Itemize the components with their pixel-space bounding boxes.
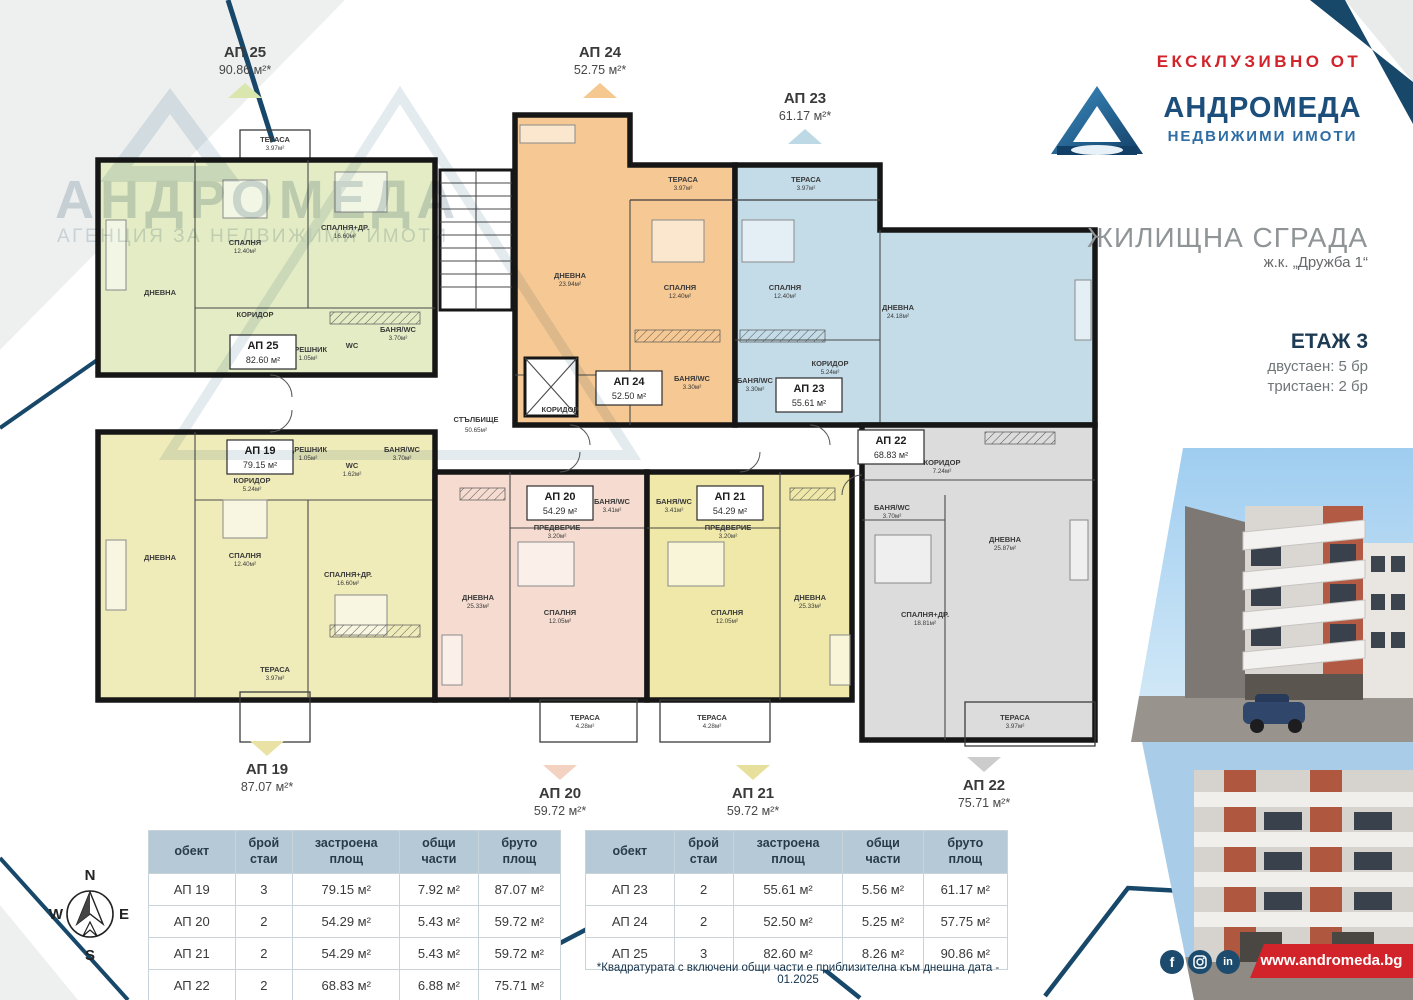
svg-text:24.18м²: 24.18м²: [887, 313, 909, 320]
svg-text:АП 20: АП 20: [545, 491, 576, 503]
table-header-row: обект брой стаи застроена площ общи част…: [586, 831, 1008, 874]
table-row: АП 242 52.50 м²5.25 м² 57.75 м²: [586, 906, 1008, 938]
brand-subtitle: НЕДВИЖИМИ ИМОТИ: [1150, 128, 1375, 145]
svg-text:3.70м²: 3.70м²: [389, 335, 408, 342]
svg-text:82.60 м²: 82.60 м²: [246, 355, 280, 365]
svg-text:3.30м²: 3.30м²: [746, 386, 765, 393]
callout-id: АП 25: [175, 44, 315, 61]
svg-text:23.94м²: 23.94м²: [559, 281, 581, 288]
svg-text:СПАЛНЯ+ДР.: СПАЛНЯ+ДР.: [324, 570, 372, 579]
svg-text:3.20м²: 3.20м²: [719, 533, 738, 540]
callout-ap24: АП 24 52.75 м²*: [530, 44, 670, 103]
door-arc: [740, 452, 760, 472]
svg-text:АП 24: АП 24: [614, 376, 646, 388]
callout-ap22: АП 22 75.71 м²*: [914, 752, 1054, 811]
svg-text:25.87м²: 25.87м²: [994, 545, 1016, 552]
col-header: застроена площ: [293, 831, 400, 874]
svg-text:55.61 м²: 55.61 м²: [792, 398, 826, 408]
callout-ap25: АП 25 90.86 м²*: [175, 44, 315, 103]
svg-text:12.40м²: 12.40м²: [234, 248, 256, 255]
door-arc: [560, 452, 580, 472]
svg-text:АП 23: АП 23: [794, 383, 825, 395]
svg-text:СПАЛНЯ: СПАЛНЯ: [664, 283, 696, 292]
svg-text:3.70м²: 3.70м²: [393, 455, 412, 462]
col-header: брой стаи: [235, 831, 293, 874]
svg-text:12.40м²: 12.40м²: [669, 293, 691, 300]
svg-text:52.50 м²: 52.50 м²: [612, 391, 646, 401]
callout-ap23: АП 23 61.17 м²*: [735, 90, 875, 149]
compass-e: E: [119, 906, 129, 923]
instagram-camera-icon: [1188, 950, 1212, 974]
floor-stat-2: тристаен: 2 бр: [1028, 378, 1368, 395]
svg-text:3.97м²: 3.97м²: [266, 145, 285, 152]
svg-text:79.15 м²: 79.15 м²: [243, 460, 277, 470]
svg-text:КОРИДОР: КОРИДОР: [812, 359, 849, 368]
svg-text:68.83 м²: 68.83 м²: [874, 450, 908, 460]
door-arc: [270, 375, 292, 397]
svg-text:7.24м²: 7.24м²: [933, 468, 952, 475]
svg-text:5.24м²: 5.24м²: [821, 369, 840, 376]
floor-label: ЕТАЖ 3: [1028, 330, 1368, 354]
apartment-label-ap22: АП 2268.83 м²: [858, 430, 924, 464]
svg-text:ТЕРАСА: ТЕРАСА: [791, 175, 821, 184]
svg-text:СПАЛНЯ: СПАЛНЯ: [229, 238, 261, 247]
col-header: обект: [586, 831, 675, 874]
svg-text:3.97м²: 3.97м²: [1006, 723, 1025, 730]
callout-pointer-icon: [543, 765, 577, 780]
svg-text:1.05м²: 1.05м²: [299, 355, 318, 362]
svg-text:25.33м²: 25.33м²: [799, 603, 821, 610]
table-row: АП 222 68.83 м²6.88 м² 75.71 м²: [149, 970, 561, 1000]
photo-content: [1125, 448, 1413, 742]
apartment-label-ap23: АП 2355.61 м²: [776, 378, 842, 412]
svg-text:АП 19: АП 19: [245, 445, 276, 457]
svg-text:1.62м²: 1.62м²: [343, 471, 362, 478]
apartment-label-ap24: АП 2452.50 м²: [596, 371, 662, 405]
area-table-right: обект брой стаи застроена площ общи част…: [585, 830, 1008, 970]
svg-text:ТЕРАСА: ТЕРАСА: [1000, 713, 1030, 722]
svg-text:ТЕРАСА: ТЕРАСА: [570, 713, 600, 722]
table-row: АП 232 55.61 м²5.56 м² 61.17 м²: [586, 874, 1008, 906]
callout-pointer-icon: [250, 741, 284, 756]
svg-text:ДРЕШНИК: ДРЕШНИК: [289, 445, 328, 454]
svg-text:СПАЛНЯ: СПАЛНЯ: [769, 283, 801, 292]
building-photo-top: [1125, 448, 1413, 742]
callout-area: 90.86 м²*: [175, 63, 315, 77]
stairwell: СТЪЛБИЩЕ 50.65м²: [440, 170, 512, 434]
svg-text:СПАЛНЯ+ДР.: СПАЛНЯ+ДР.: [321, 223, 369, 232]
facebook-icon[interactable]: f: [1160, 950, 1184, 974]
svg-text:12.40м²: 12.40м²: [234, 561, 256, 568]
svg-text:5.24м²: 5.24м²: [243, 486, 262, 493]
svg-text:25.33м²: 25.33м²: [467, 603, 489, 610]
svg-text:12.05м²: 12.05м²: [716, 618, 738, 625]
svg-text:WC: WC: [346, 461, 359, 470]
svg-text:ТЕРАСА: ТЕРАСА: [697, 713, 727, 722]
svg-text:3.41м²: 3.41м²: [603, 507, 622, 514]
svg-text:ДНЕВНА: ДНЕВНА: [554, 271, 587, 280]
svg-text:54.29 м²: 54.29 м²: [713, 506, 747, 516]
svg-text:3.97м²: 3.97м²: [674, 185, 693, 192]
svg-text:16.60м²: 16.60м²: [337, 580, 359, 587]
callout-ap21: АП 21 59.72 м²*: [683, 760, 823, 819]
compass-w: W: [49, 906, 64, 923]
svg-text:54.29 м²: 54.29 м²: [543, 506, 577, 516]
door-arc: [270, 410, 292, 432]
svg-text:3.70м²: 3.70м²: [883, 513, 902, 520]
svg-text:18.81м²: 18.81м²: [914, 620, 936, 627]
apartment-label-ap20: АП 2054.29 м²: [527, 486, 593, 520]
svg-text:КОРИДОР: КОРИДОР: [542, 405, 579, 414]
svg-text:ДНЕВНА: ДНЕВНА: [882, 303, 915, 312]
apartment-region-ap22: [862, 425, 1095, 746]
col-header: брой стаи: [674, 831, 733, 874]
table-row: АП 212 54.29 м²5.43 м² 59.72 м²: [149, 938, 561, 970]
apartment-label-ap19: АП 1979.15 м²: [227, 440, 293, 474]
svg-text:3.41м²: 3.41м²: [665, 507, 684, 514]
svg-text:3.20м²: 3.20м²: [548, 533, 567, 540]
stair-label: СТЪЛБИЩЕ: [453, 415, 498, 424]
svg-text:12.40м²: 12.40м²: [774, 293, 796, 300]
svg-text:АП 22: АП 22: [876, 435, 907, 447]
svg-text:3.97м²: 3.97м²: [266, 675, 285, 682]
brand-logo-icon: [1047, 82, 1147, 162]
svg-text:СПАЛНЯ: СПАЛНЯ: [229, 551, 261, 560]
door-arc: [570, 425, 590, 445]
svg-text:ТЕРАСА: ТЕРАСА: [260, 135, 290, 144]
col-header: общи части: [400, 831, 478, 874]
svg-text:ДНЕВНА: ДНЕВНА: [989, 535, 1022, 544]
svg-text:WC: WC: [346, 341, 359, 350]
building-title: ЖИЛИЩНА СГРАДА: [1028, 222, 1368, 254]
svg-text:КОРИДОР: КОРИДОР: [237, 310, 274, 319]
svg-text:БАНЯ/WC: БАНЯ/WC: [380, 325, 416, 334]
instagram-icon[interactable]: [1188, 950, 1212, 974]
svg-text:БАНЯ/WC: БАНЯ/WC: [674, 374, 710, 383]
col-header: бруто площ: [923, 831, 1007, 874]
svg-text:СПАЛНЯ: СПАЛНЯ: [711, 608, 743, 617]
building-location: ж.к. „Дружба 1“: [1028, 254, 1368, 271]
compass-n: N: [85, 867, 96, 884]
floor-plan-poster: СТЪЛБИЩЕ 50.65м² ТЕРАСА3.97м² ДНЕВНА СПА…: [0, 0, 1413, 1000]
svg-text:3.30м²: 3.30м²: [683, 384, 702, 391]
svg-text:АП 25: АП 25: [248, 340, 279, 352]
col-header: бруто площ: [478, 831, 560, 874]
compass-s: S: [85, 947, 95, 964]
col-header: общи части: [843, 831, 923, 874]
callout-pointer-icon: [736, 765, 770, 780]
svg-text:1.05м²: 1.05м²: [299, 455, 318, 462]
svg-text:БАНЯ/WC: БАНЯ/WC: [737, 376, 773, 385]
table-row: АП 193 79.15 м²7.92 м² 87.07 м²: [149, 874, 561, 906]
callout-pointer-icon: [228, 83, 262, 98]
svg-text:БАНЯ/WC: БАНЯ/WC: [594, 497, 630, 506]
svg-text:БАНЯ/WC: БАНЯ/WC: [874, 503, 910, 512]
svg-text:ДНЕВНА: ДНЕВНА: [144, 288, 177, 297]
svg-text:16.60м²: 16.60м²: [334, 233, 356, 240]
stair-area: 50.65м²: [465, 427, 487, 434]
floor-plan: СТЪЛБИЩЕ 50.65м² ТЕРАСА3.97м² ДНЕВНА СПА…: [40, 80, 1100, 760]
callout-ap19: АП 19 87.07 м²*: [197, 736, 337, 795]
col-header: застроена площ: [733, 831, 843, 874]
compass-icon: N E S W: [45, 862, 135, 967]
svg-text:ДНЕВНА: ДНЕВНА: [794, 593, 827, 602]
callout-ap20: АП 20 59.72 м²*: [490, 760, 630, 819]
svg-text:БАНЯ/WC: БАНЯ/WC: [656, 497, 692, 506]
exclusive-label: ЕКСКЛУЗИВНО ОТ: [1145, 52, 1373, 72]
svg-text:4.28м²: 4.28м²: [576, 723, 595, 730]
table-header-row: обект брой стаи застроена площ общи част…: [149, 831, 561, 874]
svg-text:ПРЕДВЕРИЕ: ПРЕДВЕРИЕ: [534, 523, 581, 532]
svg-text:ДНЕВНА: ДНЕВНА: [462, 593, 495, 602]
callout-pointer-icon: [788, 129, 822, 144]
brand-name: АНДРОМЕДА: [1150, 92, 1375, 125]
svg-text:12.05м²: 12.05м²: [549, 618, 571, 625]
svg-text:АП 21: АП 21: [715, 491, 746, 503]
floor-stat-1: двустаен: 5 бр: [1028, 358, 1368, 375]
svg-text:КОРИДОР: КОРИДОР: [924, 458, 961, 467]
svg-text:КОРИДОР: КОРИДОР: [234, 476, 271, 485]
door-arc: [810, 425, 830, 445]
footnote: *Квадратурата с включени общи части е пр…: [583, 962, 1013, 986]
svg-text:4.28м²: 4.28м²: [703, 723, 722, 730]
callout-pointer-icon: [583, 83, 617, 98]
svg-text:ПРЕДВЕРИЕ: ПРЕДВЕРИЕ: [705, 523, 752, 532]
svg-text:СПАЛНЯ+ДР.: СПАЛНЯ+ДР.: [901, 610, 949, 619]
svg-text:ДНЕВНА: ДНЕВНА: [144, 553, 177, 562]
svg-text:3.97м²: 3.97м²: [797, 185, 816, 192]
svg-text:ТЕРАСА: ТЕРАСА: [260, 665, 290, 674]
svg-text:СПАЛНЯ: СПАЛНЯ: [544, 608, 576, 617]
table-row: АП 202 54.29 м²5.43 м² 59.72 м²: [149, 906, 561, 938]
website-banner[interactable]: www.andromeda.bg: [1250, 944, 1413, 978]
apartment-label-ap25: АП 2582.60 м²: [230, 335, 296, 369]
svg-text:ТЕРАСА: ТЕРАСА: [668, 175, 698, 184]
linkedin-icon[interactable]: in: [1216, 950, 1240, 974]
col-header: обект: [149, 831, 236, 874]
svg-text:БАНЯ/WC: БАНЯ/WC: [384, 445, 420, 454]
area-table-left: обект брой стаи застроена площ общи част…: [148, 830, 561, 1000]
apartment-label-ap21: АП 2154.29 м²: [697, 486, 763, 520]
callout-pointer-icon: [967, 757, 1001, 772]
